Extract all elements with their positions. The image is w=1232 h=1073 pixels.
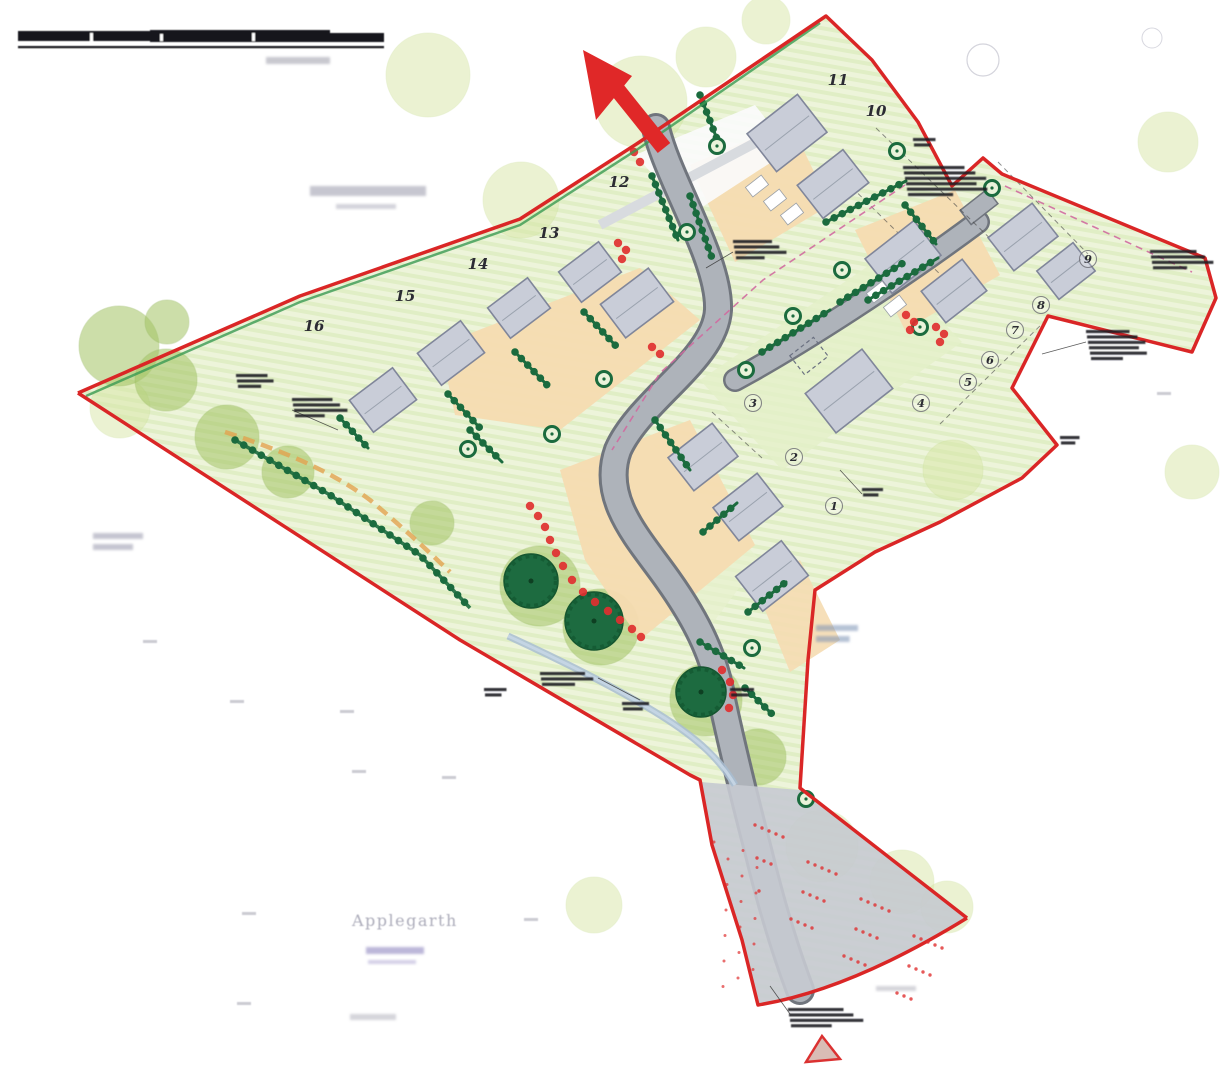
stipple-dot bbox=[902, 994, 905, 997]
stipple-dot bbox=[940, 946, 943, 949]
stipple-dot bbox=[769, 862, 772, 865]
shrub-dot bbox=[546, 536, 554, 544]
smudge-line bbox=[905, 177, 986, 180]
smudge-line bbox=[903, 166, 965, 169]
shrub-dot bbox=[541, 523, 549, 531]
smudge-line bbox=[863, 493, 878, 496]
tree-canopy-pale bbox=[1138, 112, 1198, 172]
title-underline bbox=[18, 46, 384, 48]
smudge-line bbox=[295, 414, 325, 417]
stipple-dot bbox=[919, 937, 922, 940]
survey-tick bbox=[143, 640, 157, 643]
stipple-dot bbox=[726, 883, 729, 886]
plot-number: 5 bbox=[964, 375, 972, 389]
faint-label-smudge bbox=[368, 960, 416, 964]
shrub-dot bbox=[622, 246, 630, 254]
smudge-line bbox=[789, 1013, 853, 1016]
faint-label-smudge bbox=[876, 986, 916, 991]
tree-reference-dot bbox=[715, 144, 718, 147]
smudge-line bbox=[913, 138, 936, 141]
tree-canopy-pale bbox=[923, 440, 983, 500]
smudge-line bbox=[790, 1019, 863, 1022]
smudge-line bbox=[733, 240, 772, 243]
stipple-dot bbox=[933, 943, 936, 946]
survey-tick bbox=[352, 770, 366, 773]
smudge-line bbox=[541, 677, 593, 680]
stipple-dot bbox=[742, 849, 745, 852]
shrub-dot bbox=[636, 158, 644, 166]
tree-reference-dot bbox=[918, 325, 921, 328]
stipple-dot bbox=[928, 973, 931, 976]
tree-canopy-mid bbox=[135, 349, 197, 411]
place-label-applegarth: Applegarth bbox=[351, 911, 458, 930]
tree-canopy-pale bbox=[386, 33, 470, 117]
stipple-dot bbox=[801, 890, 804, 893]
smudge-line bbox=[293, 403, 340, 406]
stipple-dot bbox=[880, 906, 883, 909]
tree-canopy-pale bbox=[676, 27, 736, 87]
faint-label-line bbox=[93, 533, 143, 539]
stipple-dot bbox=[863, 963, 866, 966]
site-plan-page: 12345678910111213141516 Applegarth bbox=[0, 0, 1232, 1073]
proposed-tree-center bbox=[529, 579, 534, 584]
stipple-dot bbox=[873, 903, 876, 906]
smudge-line bbox=[484, 688, 507, 691]
stipple-dot bbox=[827, 869, 830, 872]
plot-number: 11 bbox=[828, 71, 849, 89]
tree-reference-dot bbox=[990, 186, 993, 189]
tree-reference-dot bbox=[466, 447, 469, 450]
triangle-marker bbox=[806, 1036, 840, 1062]
tree-reference-dot bbox=[895, 149, 898, 152]
plot-number: 13 bbox=[539, 224, 560, 242]
smudge-line bbox=[294, 409, 347, 412]
stipple-dot bbox=[815, 896, 818, 899]
title-gap bbox=[252, 33, 255, 41]
stipple-dot bbox=[741, 875, 744, 878]
smudge-line bbox=[292, 398, 333, 401]
stipple-dot bbox=[789, 917, 792, 920]
tree-canopy-pale bbox=[1165, 445, 1219, 499]
shrub-dot bbox=[936, 338, 944, 346]
stipple-dot bbox=[875, 936, 878, 939]
smudge-line bbox=[1152, 261, 1213, 264]
smudge-line bbox=[904, 171, 975, 174]
stipple-dot bbox=[856, 960, 859, 963]
shrub-dot bbox=[614, 239, 622, 247]
smudge-line bbox=[731, 693, 749, 696]
tree-canopy-mid bbox=[410, 501, 454, 545]
faint-label-line bbox=[93, 544, 133, 550]
smudge-line bbox=[1150, 250, 1197, 253]
smudge-line bbox=[1151, 255, 1205, 258]
tree-canopy-pale bbox=[742, 0, 790, 44]
survey-circle bbox=[967, 44, 999, 76]
shrub-dot bbox=[725, 704, 733, 712]
stipple-dot bbox=[909, 997, 912, 1000]
stipple-dot bbox=[914, 967, 917, 970]
shrub-dot bbox=[932, 323, 940, 331]
shrub-dot bbox=[902, 311, 910, 319]
shrub-dot bbox=[568, 576, 576, 584]
smudge-line bbox=[1088, 341, 1145, 344]
shrub-dot bbox=[718, 666, 726, 674]
smudge-line bbox=[736, 256, 765, 259]
stipple-dot bbox=[762, 859, 765, 862]
smudge-line bbox=[1060, 436, 1080, 439]
tree-canopy-mid bbox=[195, 405, 259, 469]
stipple-dot bbox=[781, 835, 784, 838]
tree-reference-dot bbox=[750, 646, 753, 649]
stipple-dot bbox=[921, 970, 924, 973]
smudge-line bbox=[237, 379, 274, 382]
faint-label-line bbox=[366, 947, 424, 954]
stipple-dot bbox=[849, 957, 852, 960]
tree-reference-dot bbox=[550, 432, 553, 435]
stipple-dot bbox=[738, 951, 741, 954]
smudge-line bbox=[791, 1024, 832, 1027]
faint-label-line bbox=[816, 625, 858, 631]
faint-label-smudge bbox=[266, 57, 330, 64]
tree-reference-dot bbox=[685, 230, 688, 233]
stipple-dot bbox=[866, 900, 869, 903]
annotation-smudge bbox=[1060, 436, 1080, 445]
shrub-dot bbox=[579, 588, 587, 596]
smudge-line bbox=[730, 688, 754, 691]
smudge-line bbox=[1086, 330, 1130, 333]
faint-label-line bbox=[336, 204, 396, 209]
stipple-dot bbox=[774, 832, 777, 835]
stipple-dot bbox=[753, 823, 756, 826]
landscape-masterplan-drawing: 12345678910111213141516 Applegarth bbox=[0, 0, 1232, 1073]
faint-label-line bbox=[266, 57, 330, 64]
shrub-dot bbox=[628, 625, 636, 633]
smudge-line bbox=[862, 488, 883, 491]
smudge-line bbox=[1091, 357, 1123, 360]
smudge-line bbox=[735, 251, 786, 254]
stipple-dot bbox=[868, 933, 871, 936]
smudge-line bbox=[907, 188, 987, 191]
faint-label-line bbox=[368, 960, 416, 964]
smudge-line bbox=[238, 385, 261, 388]
stipple-dot bbox=[854, 927, 857, 930]
shrub-dot bbox=[616, 616, 624, 624]
smudge-line bbox=[542, 683, 575, 686]
stipple-dot bbox=[842, 954, 845, 957]
survey-tick bbox=[237, 1002, 251, 1005]
title-bar bbox=[300, 33, 384, 42]
smudge-line bbox=[1061, 441, 1075, 444]
plot-number: 10 bbox=[866, 102, 887, 120]
survey-circle bbox=[1142, 28, 1162, 48]
stipple-dot bbox=[813, 863, 816, 866]
faint-label-line bbox=[876, 986, 916, 991]
smudge-line bbox=[908, 193, 953, 196]
proposed-tree-center bbox=[592, 619, 597, 624]
stipple-dot bbox=[834, 872, 837, 875]
shrub-dot bbox=[604, 607, 612, 615]
tree-reference-dot bbox=[840, 268, 843, 271]
shrub-dot bbox=[552, 549, 560, 557]
stipple-dot bbox=[808, 893, 811, 896]
smudge-line bbox=[485, 693, 502, 696]
survey-tick bbox=[230, 700, 244, 703]
stipple-dot bbox=[887, 909, 890, 912]
tree-reference-dot bbox=[804, 797, 807, 800]
stipple-dot bbox=[737, 977, 740, 980]
stipple-dot bbox=[723, 960, 726, 963]
smudge-line bbox=[236, 374, 268, 377]
shrub-dot bbox=[648, 343, 656, 351]
smudge-line bbox=[906, 182, 977, 185]
smudge-line bbox=[1153, 266, 1187, 269]
stipple-dot bbox=[753, 943, 756, 946]
shrub-dot bbox=[591, 598, 599, 606]
stipple-dot bbox=[859, 897, 862, 900]
annotation-smudge bbox=[788, 1008, 863, 1027]
stipple-dot bbox=[755, 892, 758, 895]
tree-reference-dot bbox=[602, 377, 605, 380]
plot-number: 15 bbox=[395, 287, 416, 305]
stipple-dot bbox=[740, 900, 743, 903]
stipple-dot bbox=[756, 866, 759, 869]
plot-number: 6 bbox=[986, 353, 994, 367]
smudge-line bbox=[623, 707, 643, 710]
plot-number: 3 bbox=[749, 396, 757, 410]
stipple-dot bbox=[820, 866, 823, 869]
faint-label-line bbox=[310, 186, 426, 196]
plot-number: 7 bbox=[1011, 323, 1019, 337]
smudge-line bbox=[914, 143, 931, 146]
tree-canopy-pale bbox=[566, 877, 622, 933]
plot-number: 14 bbox=[468, 255, 489, 273]
stipple-dot bbox=[912, 934, 915, 937]
stipple-dot bbox=[806, 860, 809, 863]
survey-tick bbox=[1157, 392, 1171, 395]
survey-tick bbox=[442, 776, 456, 779]
stipple-dot bbox=[722, 985, 725, 988]
title-block-smudge bbox=[18, 30, 384, 48]
stipple-dot bbox=[926, 940, 929, 943]
plot-number: 1 bbox=[830, 499, 838, 513]
smudge-line bbox=[1087, 335, 1137, 338]
title-gap bbox=[160, 34, 163, 41]
stipple-dot bbox=[760, 826, 763, 829]
faint-label-smudge bbox=[310, 186, 426, 196]
faint-label-line bbox=[350, 1014, 396, 1020]
shrub-dot bbox=[526, 502, 534, 510]
stipple-dot bbox=[895, 991, 898, 994]
faint-label-smudge bbox=[336, 204, 396, 209]
survey-tick bbox=[340, 710, 354, 713]
stipple-dot bbox=[725, 909, 728, 912]
shrub-dot bbox=[906, 326, 914, 334]
leader-line bbox=[1042, 342, 1086, 354]
faint-label-line bbox=[816, 636, 850, 642]
smudge-line bbox=[540, 672, 585, 675]
tree-canopy-mid bbox=[145, 300, 189, 344]
plot-number: 16 bbox=[304, 317, 325, 335]
smudge-line bbox=[622, 702, 649, 705]
stipple-dot bbox=[724, 934, 727, 937]
smudge-line bbox=[1090, 352, 1147, 355]
shrub-dot bbox=[726, 678, 734, 686]
stipple-dot bbox=[822, 899, 825, 902]
stipple-dot bbox=[907, 964, 910, 967]
annotation-smudge bbox=[484, 688, 507, 697]
tree-reference-dot bbox=[791, 314, 794, 317]
shrub-dot bbox=[618, 255, 626, 263]
stipple-dot bbox=[803, 923, 806, 926]
stipple-dot bbox=[713, 841, 716, 844]
survey-tick bbox=[524, 918, 538, 921]
shrub-dot bbox=[940, 330, 948, 338]
smudge-line bbox=[788, 1008, 844, 1011]
stipple-dot bbox=[796, 920, 799, 923]
shrub-dot bbox=[910, 318, 918, 326]
faint-label-smudge bbox=[350, 1014, 396, 1020]
shrub-dot bbox=[534, 512, 542, 520]
stipple-dot bbox=[757, 889, 760, 892]
stipple-dot bbox=[755, 856, 758, 859]
stipple-dot bbox=[727, 858, 730, 861]
stipple-dot bbox=[739, 926, 742, 929]
stipple-dot bbox=[754, 917, 757, 920]
faint-label-smudge bbox=[366, 947, 424, 954]
shrub-dot bbox=[559, 562, 567, 570]
stipple-dot bbox=[810, 926, 813, 929]
stipple-dot bbox=[861, 930, 864, 933]
faint-label-smudge bbox=[93, 533, 143, 550]
plot-number: 2 bbox=[789, 450, 798, 464]
plot-number: 8 bbox=[1037, 298, 1045, 312]
proposed-tree-center bbox=[699, 690, 704, 695]
title-gap bbox=[90, 33, 93, 41]
smudge-line bbox=[1089, 346, 1139, 349]
shrub-dot bbox=[656, 350, 664, 358]
shrub-dot bbox=[637, 633, 645, 641]
tree-reference-dot bbox=[744, 368, 747, 371]
survey-tick bbox=[242, 912, 256, 915]
plot-number: 9 bbox=[1084, 252, 1092, 266]
smudge-line bbox=[734, 245, 779, 248]
plot-number: 12 bbox=[609, 173, 630, 191]
stipple-dot bbox=[767, 829, 770, 832]
stipple-dot bbox=[752, 968, 755, 971]
plot-number: 4 bbox=[917, 396, 925, 410]
